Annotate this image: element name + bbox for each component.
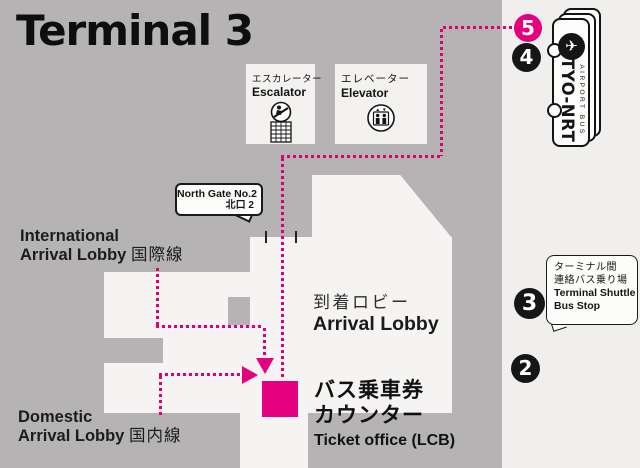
arrival-lobby-en: Arrival Lobby: [313, 313, 439, 336]
bus-stop-5-badge: 5: [514, 14, 542, 42]
gate-callout-line2: 北口 2: [177, 200, 254, 212]
gate-tick-right: [295, 231, 297, 243]
bus-stop-3-badge: 3: [514, 288, 545, 319]
elevator-box: エレベーター Elevator: [335, 64, 427, 144]
building-slot: [104, 338, 163, 363]
airplane-icon: ✈: [558, 33, 585, 60]
route2-segment-c: [263, 328, 266, 357]
shuttle-en1: Terminal Shuttle: [554, 287, 637, 300]
route2-arrow-down-icon: [256, 358, 274, 374]
route2-segment-b: [156, 325, 264, 328]
airport-bus-ticket-logo: ✈ AIRPORT BUS TYO-NRT: [548, 8, 606, 150]
international-line2: Arrival Lobby 国際線: [20, 246, 183, 265]
escalator-label-ja: エスカレーター: [252, 71, 315, 85]
escalator-label-en: Escalator: [252, 85, 315, 99]
escalator-box: エスカレーター Escalator: [246, 64, 315, 144]
route3-segment-b: [159, 373, 241, 376]
page-title: Terminal 3: [16, 6, 253, 55]
elevator-icon: [365, 102, 397, 134]
domestic-line2-ja: 国内線: [129, 427, 182, 445]
bus-stop-2-badge: 2: [511, 354, 540, 383]
terminal3-map: Terminal 3 エスカレーター Escalator エレベーター Elev…: [0, 0, 640, 468]
ticket-office-ja2: カウンター: [314, 403, 455, 428]
ticket-brand-main: TYO-NRT: [558, 58, 577, 142]
ticket-office-en: Ticket office (LCB): [314, 432, 455, 450]
gate-tick-left: [265, 231, 267, 243]
domestic-arrival-label: Domestic Arrival Lobby 国内線: [18, 408, 181, 446]
route1-segment-d: [281, 158, 284, 379]
arrival-lobby-label: 到着ロビー Arrival Lobby: [313, 292, 439, 336]
route3-arrow-right-icon: [242, 366, 258, 384]
bus-stop-4-badge: 4: [512, 43, 541, 72]
shuttle-ja2: 連絡バス乗り場: [554, 274, 637, 287]
gate-callout-line1: North Gate No.2: [177, 188, 254, 200]
ticket-brand-sub: AIRPORT BUS: [577, 58, 585, 142]
shuttle-en2: Bus Stop: [554, 300, 637, 313]
ticket-brand: AIRPORT BUS TYO-NRT: [555, 58, 585, 142]
elevator-label-ja: エレベーター: [341, 71, 427, 86]
domestic-line1: Domestic: [18, 408, 181, 427]
arrival-lobby-ja: 到着ロビー: [313, 292, 439, 313]
ticket-office-label: バス乗車券 カウンター Ticket office (LCB): [314, 378, 455, 450]
route1-segment-c: [281, 155, 441, 158]
route1-segment-b: [440, 29, 443, 156]
international-line1: International: [20, 227, 183, 246]
domestic-line2: Arrival Lobby 国内線: [18, 427, 181, 446]
building-notch: [228, 297, 250, 325]
escalator-icon: [264, 101, 298, 143]
route2-segment-a: [156, 268, 159, 326]
ticket-office-marker: [262, 381, 298, 417]
building-upper-block: [312, 175, 452, 238]
international-arrival-label: International Arrival Lobby 国際線: [20, 227, 183, 265]
elevator-label-en: Elevator: [341, 86, 427, 100]
ticket-office-ja1: バス乗車券: [314, 378, 455, 403]
shuttle-callout: ターミナル間 連絡バス乗り場 Terminal Shuttle Bus Stop: [546, 255, 638, 325]
shuttle-ja1: ターミナル間: [554, 261, 637, 274]
international-line2-ja: 国際線: [131, 246, 184, 264]
route1-segment-a: [443, 26, 513, 29]
building-bottom-strip: [240, 413, 308, 468]
gate-callout: North Gate No.2 北口 2: [175, 183, 263, 216]
